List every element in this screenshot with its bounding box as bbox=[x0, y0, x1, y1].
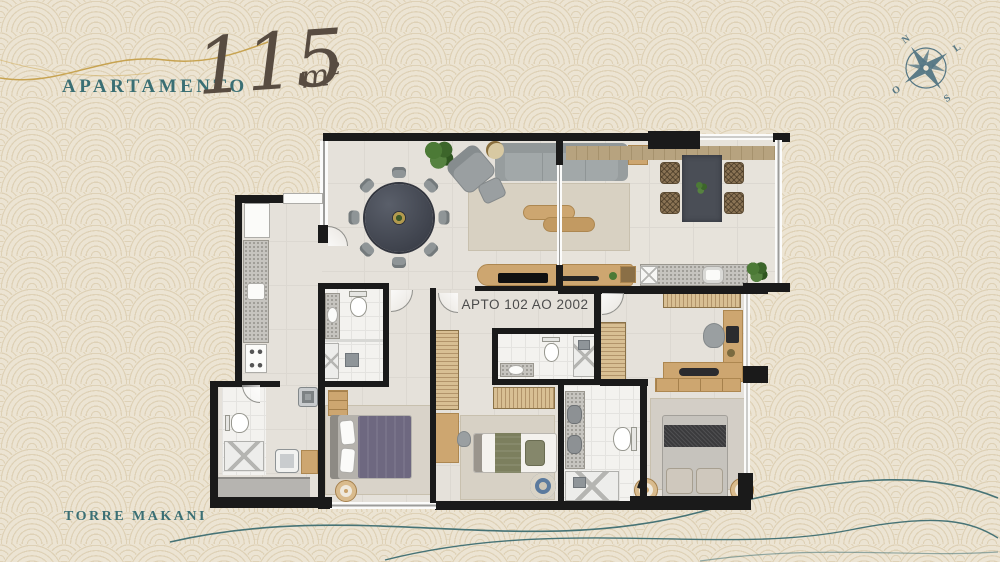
laundry-cabinet bbox=[301, 450, 318, 474]
office-keyboard-tray bbox=[679, 368, 719, 376]
compass-s: S bbox=[942, 92, 953, 104]
bathroom1-shower-head bbox=[345, 353, 359, 367]
sliding-glass-door bbox=[557, 165, 562, 265]
dining-chair bbox=[349, 211, 360, 225]
office-monitor bbox=[726, 326, 739, 343]
master-bath-toilet bbox=[613, 427, 631, 451]
wall bbox=[558, 379, 564, 503]
wall bbox=[556, 133, 563, 165]
wall bbox=[492, 379, 601, 385]
kitchen-sink bbox=[247, 283, 265, 300]
wall bbox=[235, 195, 285, 203]
service-toilet bbox=[231, 413, 249, 433]
bathroom2-sink bbox=[508, 365, 524, 375]
master-pillow bbox=[696, 468, 723, 494]
bathroom1-toilet bbox=[350, 297, 367, 317]
decor-side-table bbox=[486, 141, 504, 159]
bedroom3-wardrobe bbox=[493, 387, 555, 409]
master-bed-throw bbox=[664, 425, 726, 447]
wall bbox=[430, 288, 436, 503]
bathroom1-sink bbox=[327, 307, 338, 323]
master-bath-toilet-tank bbox=[631, 427, 637, 451]
wall bbox=[640, 379, 647, 503]
bathroom2-shower-head bbox=[578, 340, 590, 350]
cooktop-stove bbox=[245, 344, 267, 373]
refrigerator bbox=[244, 202, 270, 238]
tv bbox=[498, 273, 548, 283]
bedroom3-round-rug bbox=[530, 473, 556, 499]
pass-through-counter bbox=[283, 193, 323, 204]
wall bbox=[318, 381, 389, 387]
dining-chair bbox=[392, 257, 406, 268]
bedroom3-blanket bbox=[495, 433, 521, 473]
bar-cart bbox=[620, 266, 636, 283]
seigaiha-pattern-background: APARTAMENTO 115 m² N L S O bbox=[0, 0, 1000, 562]
compass-o: O bbox=[890, 84, 903, 98]
wall bbox=[492, 328, 498, 381]
bedroom3-desk-chair bbox=[457, 431, 471, 447]
master-bath-vanity bbox=[565, 391, 585, 469]
bedroom2-duvet bbox=[358, 416, 411, 478]
wall bbox=[492, 328, 600, 334]
compass-l: L bbox=[951, 41, 963, 54]
dining-chair bbox=[392, 167, 406, 178]
balcony-table-plant bbox=[694, 180, 709, 195]
wall bbox=[630, 496, 751, 510]
master-pillow bbox=[666, 468, 693, 494]
master-wardrobe bbox=[655, 378, 741, 392]
bedroom3-desk bbox=[435, 413, 459, 463]
washing-machine bbox=[298, 387, 318, 407]
window bbox=[700, 134, 778, 140]
bathroom1-shower-door bbox=[323, 343, 339, 379]
tower-name: TORRE MAKANI bbox=[64, 509, 207, 525]
coffee-table bbox=[543, 217, 595, 232]
compass-rose-icon: N L S O bbox=[884, 26, 968, 110]
balcony-chair bbox=[660, 192, 680, 214]
office-wardrobe bbox=[663, 292, 741, 308]
wall bbox=[318, 283, 325, 387]
soundbar bbox=[557, 276, 599, 281]
bedroom2-pillow bbox=[339, 419, 357, 445]
window-glass-railing bbox=[775, 140, 782, 287]
wall bbox=[318, 225, 328, 243]
bedroom2-dresser bbox=[328, 390, 348, 416]
compass-n: N bbox=[900, 33, 913, 47]
office-decor bbox=[727, 349, 735, 357]
window bbox=[744, 383, 750, 475]
master-bath-shower-head bbox=[573, 477, 586, 488]
wall bbox=[383, 283, 389, 387]
bathroom2-toilet bbox=[544, 343, 559, 362]
unit-label: APTO 102 AO 2002 bbox=[425, 297, 625, 312]
wall bbox=[210, 497, 332, 508]
balcony-plant bbox=[746, 261, 768, 283]
wall bbox=[475, 286, 561, 291]
floor-plan: APTO 102 AO 2002 bbox=[195, 125, 790, 510]
bathroom2-toilet-tank bbox=[542, 337, 560, 342]
wall bbox=[435, 501, 631, 510]
bathroom1-shower-divider bbox=[323, 339, 387, 342]
bedroom2-nightstand bbox=[335, 480, 357, 502]
balcony-chair bbox=[724, 162, 744, 184]
master-bath-sink bbox=[567, 435, 582, 454]
bedroom3-cushion bbox=[525, 440, 545, 466]
dining-chair bbox=[439, 211, 450, 225]
bedroom2-pillow bbox=[339, 447, 356, 473]
wall bbox=[318, 283, 388, 289]
balcony-sink bbox=[702, 266, 724, 284]
office-chair bbox=[703, 323, 725, 348]
dining-centerpiece bbox=[392, 211, 406, 225]
wall bbox=[558, 286, 768, 294]
master-closet bbox=[600, 322, 626, 380]
balcony-chair bbox=[724, 192, 744, 214]
wall bbox=[556, 265, 563, 290]
window bbox=[328, 502, 436, 509]
service-toilet-tank bbox=[225, 415, 230, 431]
window bbox=[744, 292, 750, 368]
service-ledge bbox=[218, 477, 310, 499]
area-unit: m² bbox=[298, 56, 343, 96]
wall bbox=[318, 385, 325, 497]
balcony-cabinet bbox=[640, 266, 658, 284]
wall bbox=[235, 195, 242, 387]
service-shower bbox=[224, 441, 264, 471]
wall-column bbox=[743, 366, 768, 383]
bedroom3-closet bbox=[433, 330, 459, 410]
balcony-chair bbox=[660, 162, 680, 184]
laundry-sink bbox=[275, 449, 299, 473]
wall bbox=[323, 133, 648, 141]
wall bbox=[210, 383, 218, 501]
wall-column bbox=[648, 131, 700, 149]
console-plant-decor bbox=[609, 272, 617, 280]
window bbox=[320, 141, 328, 226]
master-bath-sink bbox=[567, 405, 582, 424]
